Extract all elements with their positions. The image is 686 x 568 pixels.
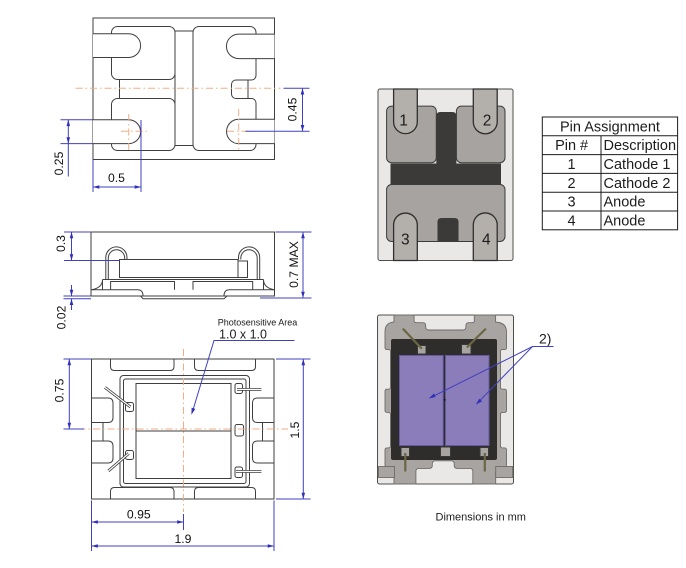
svg-text:Anode: Anode <box>604 195 646 211</box>
svg-text:Cathode 2: Cathode 2 <box>604 176 671 192</box>
svg-text:Anode: Anode <box>604 213 646 229</box>
svg-text:0.45: 0.45 <box>285 97 299 121</box>
svg-text:Pin #: Pin # <box>555 138 588 154</box>
svg-text:0.3: 0.3 <box>54 235 68 252</box>
svg-text:1.5: 1.5 <box>288 421 302 438</box>
svg-text:0.25: 0.25 <box>52 151 66 175</box>
svg-text:0.75: 0.75 <box>53 378 67 402</box>
svg-text:1.9: 1.9 <box>175 532 192 546</box>
svg-text:0.5: 0.5 <box>108 171 125 185</box>
svg-text:0.02: 0.02 <box>55 305 69 329</box>
svg-text:1.0 x 1.0: 1.0 x 1.0 <box>219 328 267 342</box>
svg-text:1: 1 <box>399 113 408 130</box>
svg-text:Dimensions in mm: Dimensions in mm <box>436 512 526 524</box>
svg-text:4: 4 <box>482 232 491 249</box>
svg-text:Description: Description <box>604 138 677 154</box>
svg-text:4: 4 <box>568 213 576 229</box>
svg-text:Photosensitive Area: Photosensitive Area <box>218 318 298 328</box>
svg-text:Cathode 1: Cathode 1 <box>604 157 671 173</box>
svg-text:0.7 MAX: 0.7 MAX <box>287 241 301 288</box>
svg-text:Pin Assignment: Pin Assignment <box>560 119 660 135</box>
svg-text:3: 3 <box>568 195 576 211</box>
svg-text:0.95: 0.95 <box>127 508 151 522</box>
svg-text:2: 2 <box>568 176 576 192</box>
svg-text:1: 1 <box>568 157 576 173</box>
svg-text:3: 3 <box>401 232 410 249</box>
svg-text:2: 2 <box>483 113 492 130</box>
svg-text:2): 2) <box>539 331 551 347</box>
